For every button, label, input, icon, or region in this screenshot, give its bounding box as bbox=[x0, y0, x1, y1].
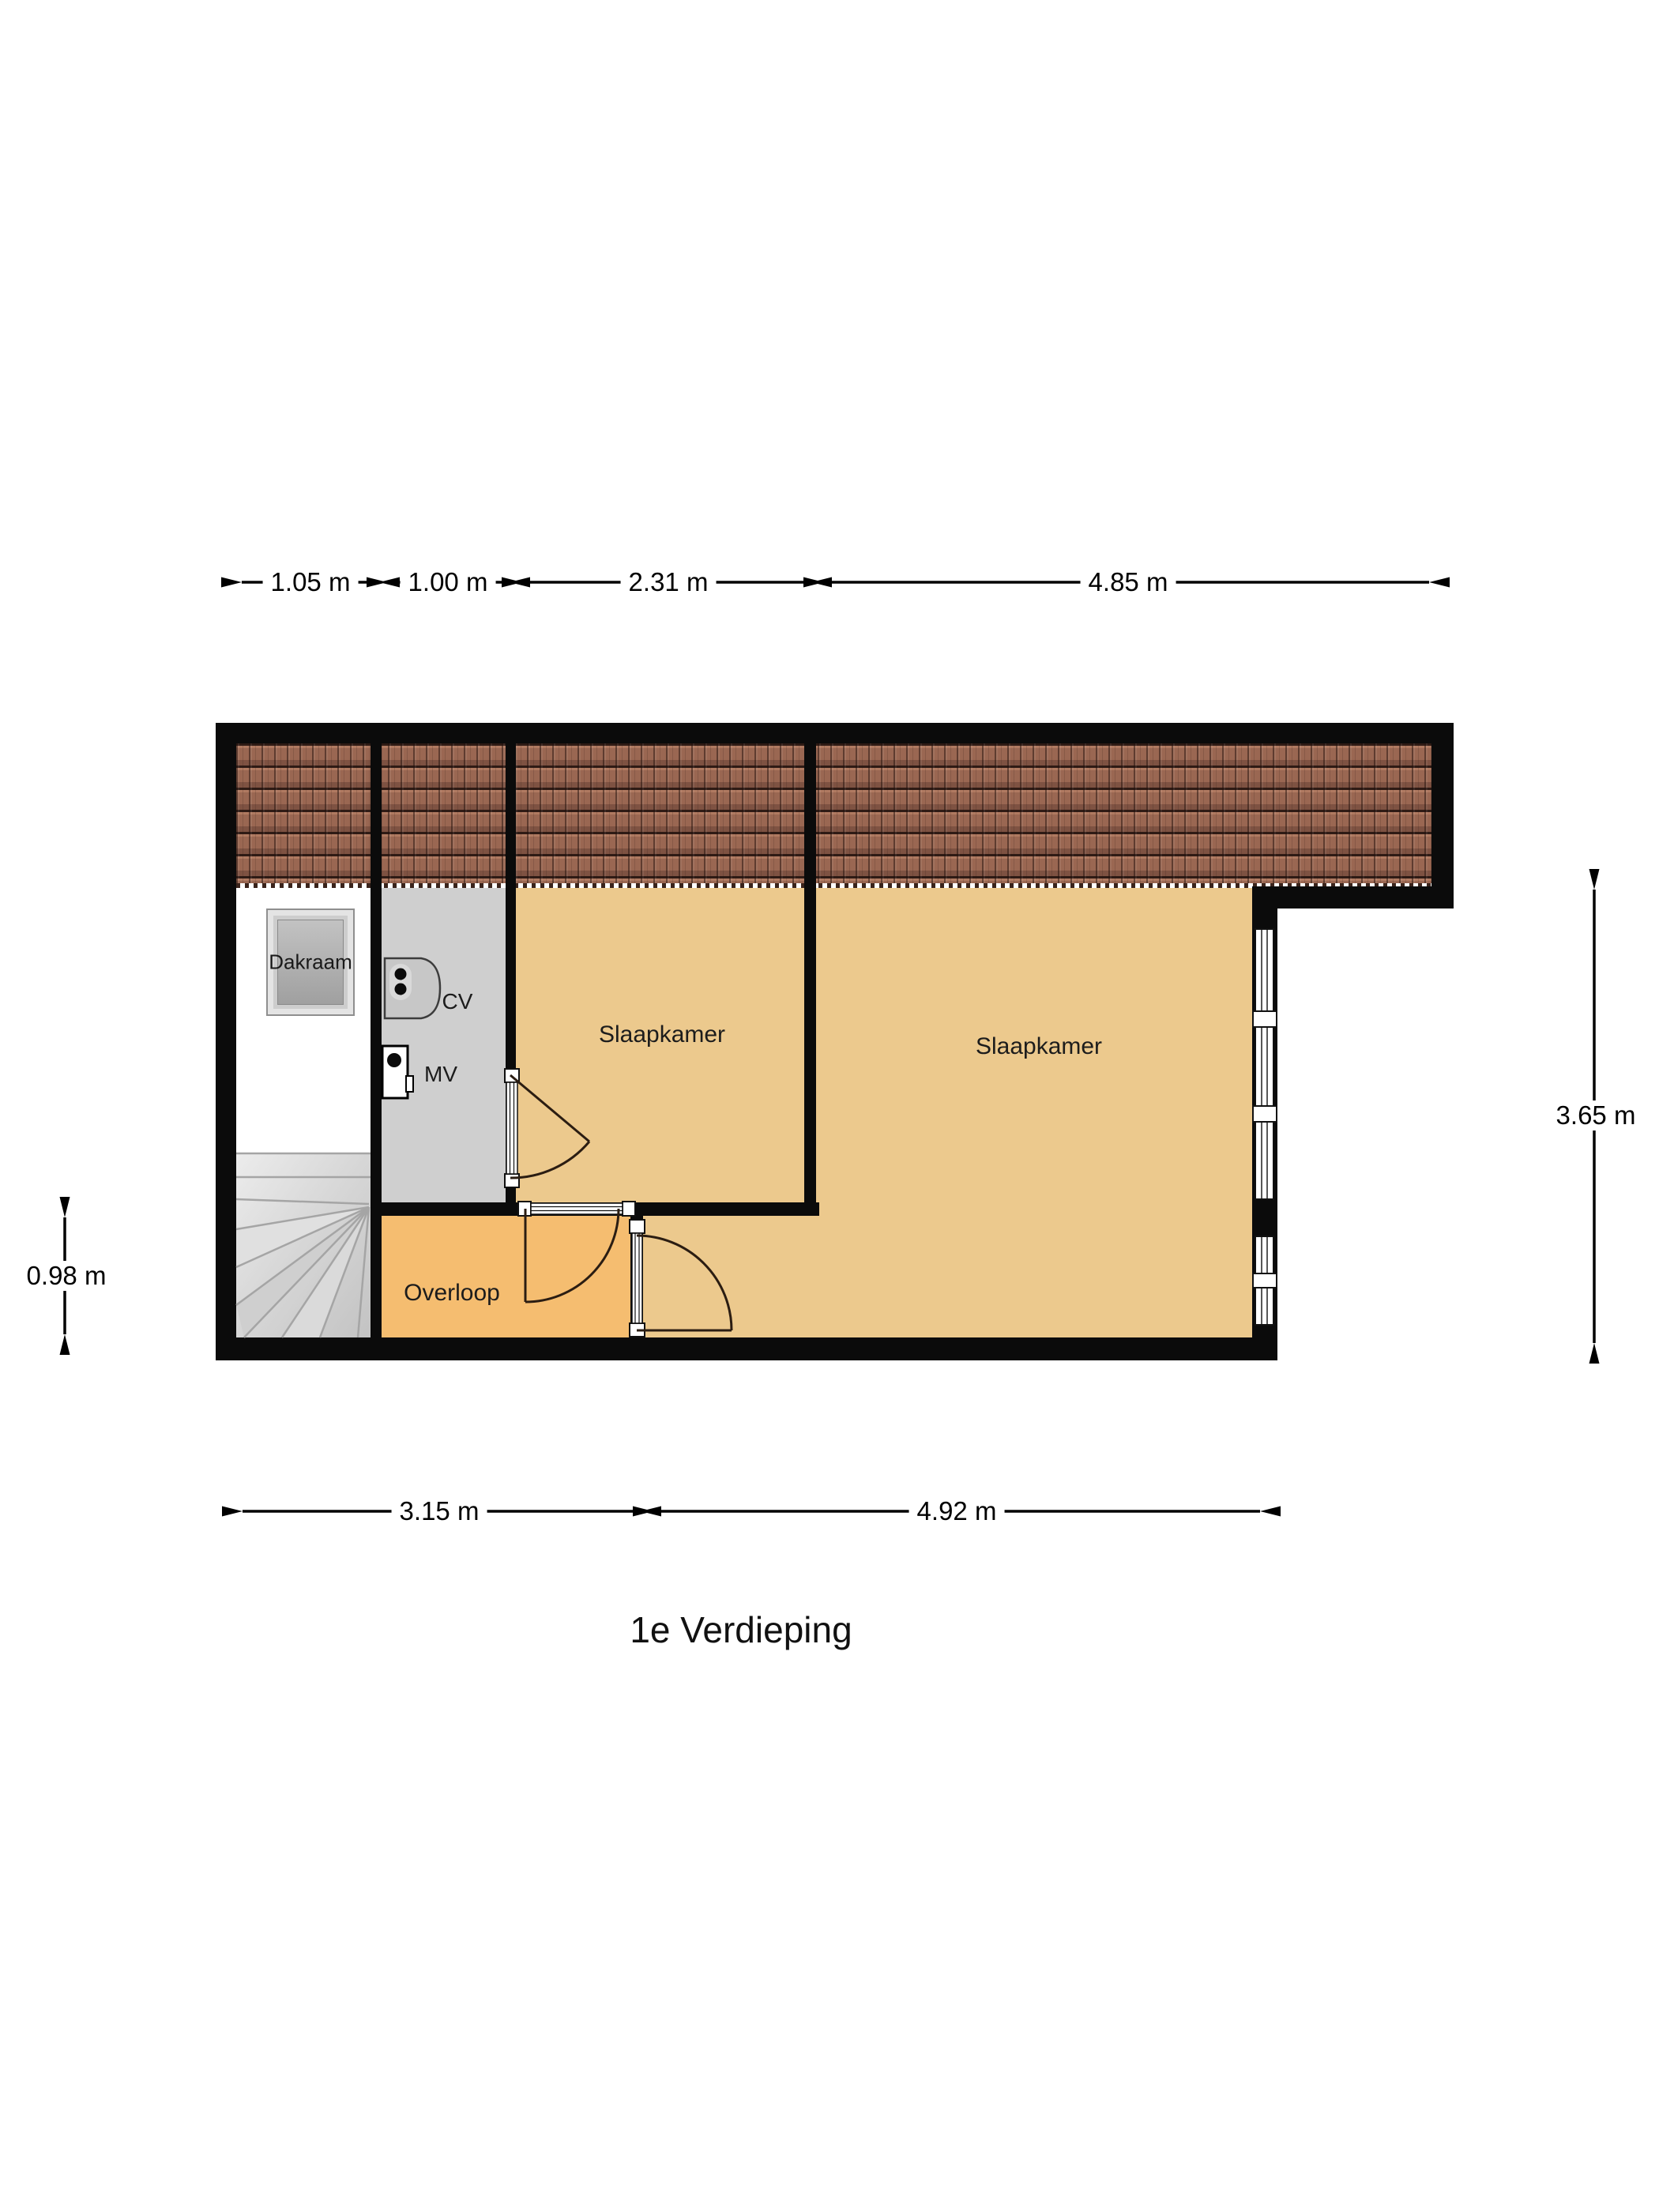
boiler-label: CV bbox=[442, 989, 473, 1014]
door-bedroom-large bbox=[630, 1220, 732, 1337]
window-right-lower bbox=[1253, 1236, 1277, 1325]
dim-label-top-1: 1.05 m bbox=[263, 567, 359, 597]
dim-label-top-3: 2.31 m bbox=[621, 567, 717, 597]
stairs bbox=[236, 1153, 371, 1337]
dim-label-bottom-1: 3.15 m bbox=[392, 1496, 487, 1526]
ventilation-label: MV bbox=[424, 1062, 457, 1087]
dim-label-top-4: 4.85 m bbox=[1081, 567, 1176, 597]
dimension-arrows bbox=[65, 582, 1594, 1511]
dim-label-bottom-2: 4.92 m bbox=[909, 1496, 1005, 1526]
room-label-bedroom-large: Slaapkamer bbox=[976, 1033, 1102, 1060]
boiler-icon bbox=[385, 958, 440, 1018]
dim-label-right: 3.65 m bbox=[1548, 1100, 1644, 1130]
dim-label-top-2: 1.00 m bbox=[401, 567, 496, 597]
room-label-landing: Overloop bbox=[404, 1280, 500, 1307]
window-right-upper bbox=[1253, 929, 1277, 1199]
door-bedroom-small bbox=[505, 1069, 589, 1187]
floor-title: 1e Verdieping bbox=[630, 1608, 852, 1651]
dim-label-left: 0.98 m bbox=[19, 1261, 115, 1291]
floorplan-canvas: Dakraam CV MV Slaapkamer Slaapkamer Over… bbox=[0, 0, 1659, 2212]
linework-layer bbox=[0, 0, 1659, 2212]
ventilation-icon bbox=[382, 1046, 413, 1098]
room-label-bedroom-small: Slaapkamer bbox=[599, 1021, 725, 1048]
window-pier bbox=[1252, 1206, 1277, 1227]
roof-window-label: Dakraam bbox=[269, 950, 352, 975]
door-landing-top bbox=[518, 1202, 635, 1302]
